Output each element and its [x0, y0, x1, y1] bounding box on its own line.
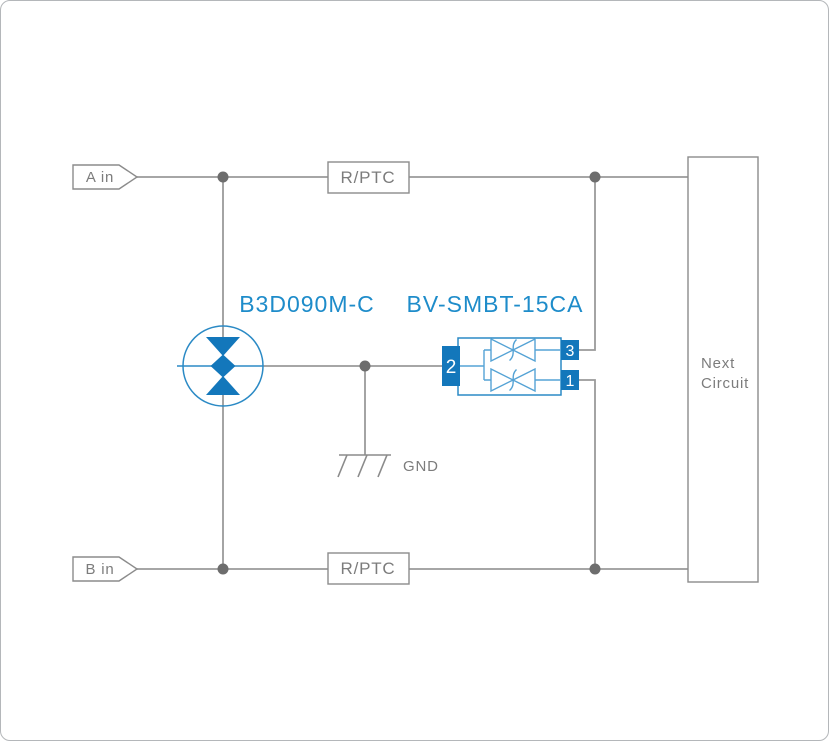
ground-symbol: GND [338, 455, 439, 477]
tvs-diode-top-left-triangle [491, 339, 513, 361]
tvs-part-label: BV-SMBT-15CA [407, 291, 584, 317]
tvs-pin-1-label: 1 [566, 373, 575, 390]
fuse-top: R/PTC [328, 162, 409, 193]
tvs-diode-bottom-left-triangle [491, 369, 513, 391]
fuse-bottom-label: R/PTC [341, 559, 396, 578]
junction-b-left [218, 564, 229, 575]
tvs-diode-bottom-right-triangle [513, 369, 535, 391]
tvs-pin-3-label: 3 [566, 343, 575, 360]
circuit-diagram: GND A in B in R/PTC R/PTC Next Circuit [1, 1, 829, 741]
next-circuit-block: Next Circuit [688, 157, 758, 582]
tvs-diode-bottom-gate-curve [510, 370, 517, 391]
junction-dots [218, 172, 601, 575]
tvs-diode-top-gate-curve [510, 340, 517, 361]
next-circuit-label-line2: Circuit [701, 375, 749, 392]
gdt-part-label: B3D090M-C [239, 291, 375, 317]
fuse-top-label: R/PTC [341, 168, 396, 187]
junction-gnd [360, 361, 371, 372]
ground-hatch-2 [358, 455, 367, 477]
next-circuit-label-line1: Next [701, 355, 735, 372]
gdt-center-diamond [211, 355, 236, 378]
gdt-bottom-electrode-triangle [206, 376, 240, 395]
input-b-tag: B in [73, 557, 137, 581]
tvs-symbol: 2 3 1 [442, 338, 579, 395]
input-a-label: A in [86, 169, 114, 186]
junction-b-right [590, 564, 601, 575]
gdt-symbol [177, 326, 263, 406]
junction-a-right [590, 172, 601, 183]
junction-a-left [218, 172, 229, 183]
wire-pin1-to-line-b [579, 380, 595, 569]
tvs-diode-bottom [491, 369, 535, 391]
input-a-tag: A in [73, 165, 137, 189]
wire-pin3-to-line-a [579, 177, 595, 350]
tvs-diode-top [491, 339, 535, 361]
schematic-canvas: GND A in B in R/PTC R/PTC Next Circuit [0, 0, 829, 741]
tvs-diode-top-right-triangle [513, 339, 535, 361]
ground-label: GND [403, 458, 439, 475]
fuse-bottom: R/PTC [328, 553, 409, 584]
gdt-top-electrode-triangle [206, 337, 240, 356]
ground-hatch-1 [338, 455, 347, 477]
input-b-label: B in [85, 561, 114, 578]
ground-hatch-3 [378, 455, 387, 477]
tvs-pin-2-label: 2 [446, 357, 457, 378]
